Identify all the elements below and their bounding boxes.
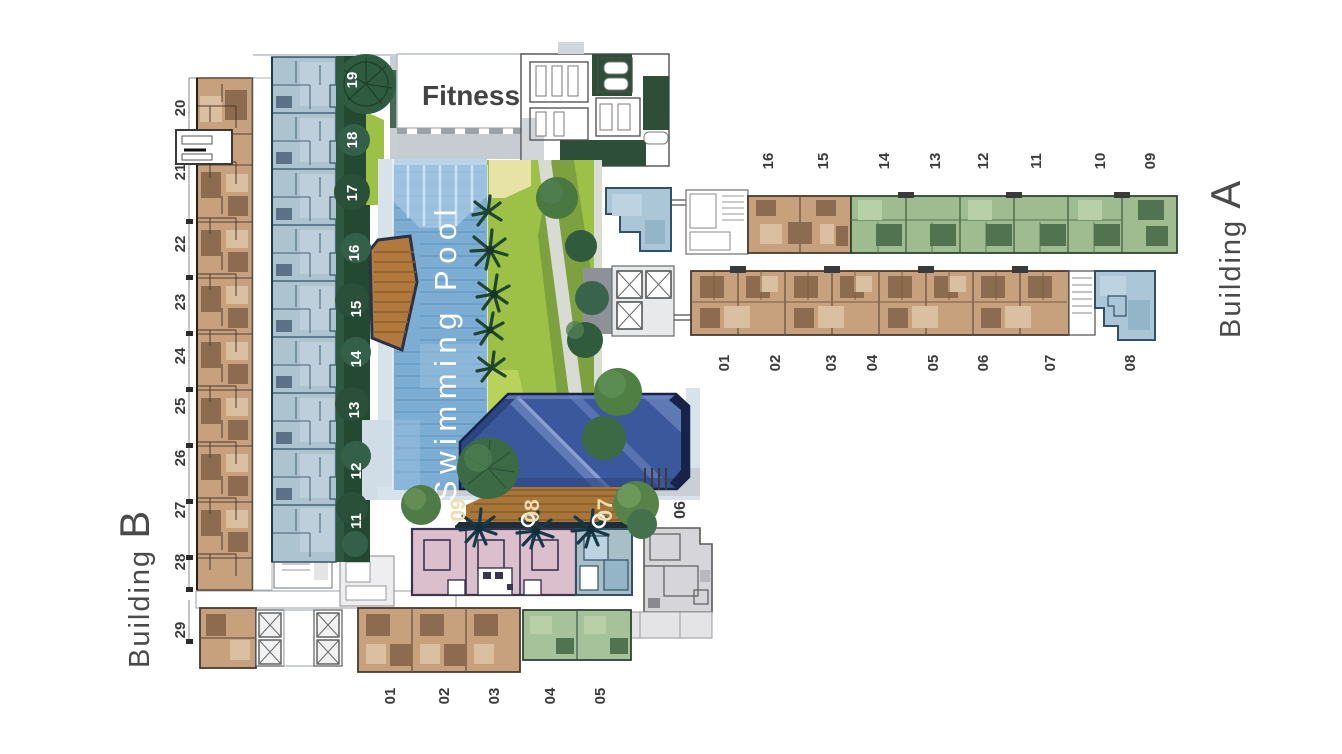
svg-text:14: 14 [876,152,893,169]
svg-text:15: 15 [815,153,832,170]
svg-text:13: 13 [927,153,944,170]
svg-text:16: 16 [346,245,363,262]
svg-text:14: 14 [348,350,365,367]
svg-text:08: 08 [521,499,544,523]
svg-text:29: 29 [172,622,189,639]
svg-text:11: 11 [1028,153,1045,169]
svg-text:04: 04 [542,687,559,704]
svg-text:13: 13 [346,402,363,419]
svg-text:08: 08 [1122,355,1139,372]
svg-text:Fitness: Fitness [422,80,520,111]
svg-text:20: 20 [172,100,189,117]
svg-text:21: 21 [172,164,189,181]
svg-text:04: 04 [864,354,881,371]
svg-text:06: 06 [975,355,992,372]
svg-text:06: 06 [672,501,689,519]
svg-text:23: 23 [172,294,189,311]
svg-text:15: 15 [348,301,365,318]
svg-text:07: 07 [1042,355,1059,372]
svg-text:10: 10 [1092,153,1109,170]
svg-text:Swimming Pool: Swimming Pool [428,203,463,501]
svg-text:03: 03 [486,688,503,705]
svg-text:01: 01 [716,355,733,372]
svg-text:09: 09 [1142,153,1159,170]
svg-text:19: 19 [344,72,361,89]
svg-text:27: 27 [172,502,189,519]
svg-text:05: 05 [925,355,942,372]
svg-text:12: 12 [348,463,365,480]
svg-text:16: 16 [760,153,777,170]
svg-text:02: 02 [767,355,784,372]
svg-text:11: 11 [348,513,365,529]
svg-text:22: 22 [172,236,189,253]
svg-text:24: 24 [172,347,189,364]
svg-text:28: 28 [172,554,189,571]
svg-text:01: 01 [382,688,399,705]
svg-text:18: 18 [344,132,361,149]
svg-text:03: 03 [823,355,840,372]
svg-text:07: 07 [594,498,617,521]
svg-text:25: 25 [172,398,189,415]
svg-text:12: 12 [975,153,992,170]
svg-text:17: 17 [344,185,361,202]
svg-text:26: 26 [172,450,189,467]
svg-text:09: 09 [447,498,470,521]
svg-text:05: 05 [592,688,609,705]
svg-text:02: 02 [436,688,453,705]
